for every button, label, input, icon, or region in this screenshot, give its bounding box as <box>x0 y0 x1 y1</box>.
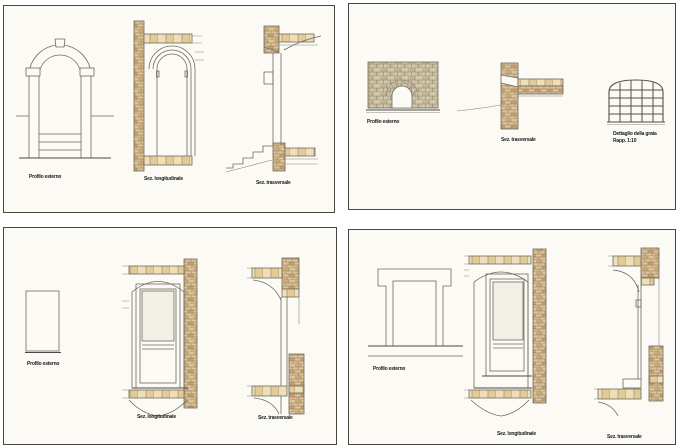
label-transverse-section: Sez. trasversale <box>256 180 291 186</box>
longitudinal-section-drawing <box>464 248 552 418</box>
sheet-window-niche: Profilo esterno Sez. longitudinale Sez. … <box>3 227 337 445</box>
sheet-framed-doorway: Profilo esterno Sez. longitudinale Sez. … <box>348 229 676 445</box>
transverse-section-drawing <box>594 244 674 430</box>
label-transverse-section: Sez. trasversale <box>607 434 642 440</box>
label-grate-detail: Dettaglio della grata <box>613 131 657 137</box>
label-transverse-section: Sez. trasversale <box>258 415 293 421</box>
label-elevation: Profilo esterno <box>373 366 405 372</box>
transverse-section-stairs-drawing <box>226 16 326 181</box>
brick-arch-elevation-drawing <box>366 60 446 118</box>
label-elevation: Profilo esterno <box>29 174 61 180</box>
door-elevation-drawing <box>367 266 467 362</box>
label-elevation: Profilo esterno <box>27 361 59 367</box>
wall-beam-section-drawing <box>457 59 569 139</box>
arch-elevation-drawing <box>16 22 116 170</box>
label-longitudinal-section: Sez. longitudinale <box>137 414 176 420</box>
longitudinal-section-drawing <box>126 18 218 176</box>
label-grate-scale: Rapp. 1:10 <box>613 138 636 144</box>
longitudinal-section-drawing <box>122 256 206 418</box>
label-longitudinal-section: Sez. longitudinale <box>497 431 536 437</box>
sheet-brick-opening-grate: Profilo esterno Sez. trasversale Dettagl… <box>348 3 676 210</box>
label-transverse-section: Sez. trasversale <box>501 137 536 143</box>
label-longitudinal-section: Sez. longitudinale <box>144 176 183 182</box>
transverse-section-drawing <box>247 256 325 418</box>
window-elevation-drawing <box>24 288 64 358</box>
grate-detail-drawing <box>607 76 665 128</box>
label-elevation: Profilo esterno <box>367 119 399 125</box>
sheet-arched-doorway: Profilo esterno Sez. longitudinale Sez. … <box>3 5 335 213</box>
